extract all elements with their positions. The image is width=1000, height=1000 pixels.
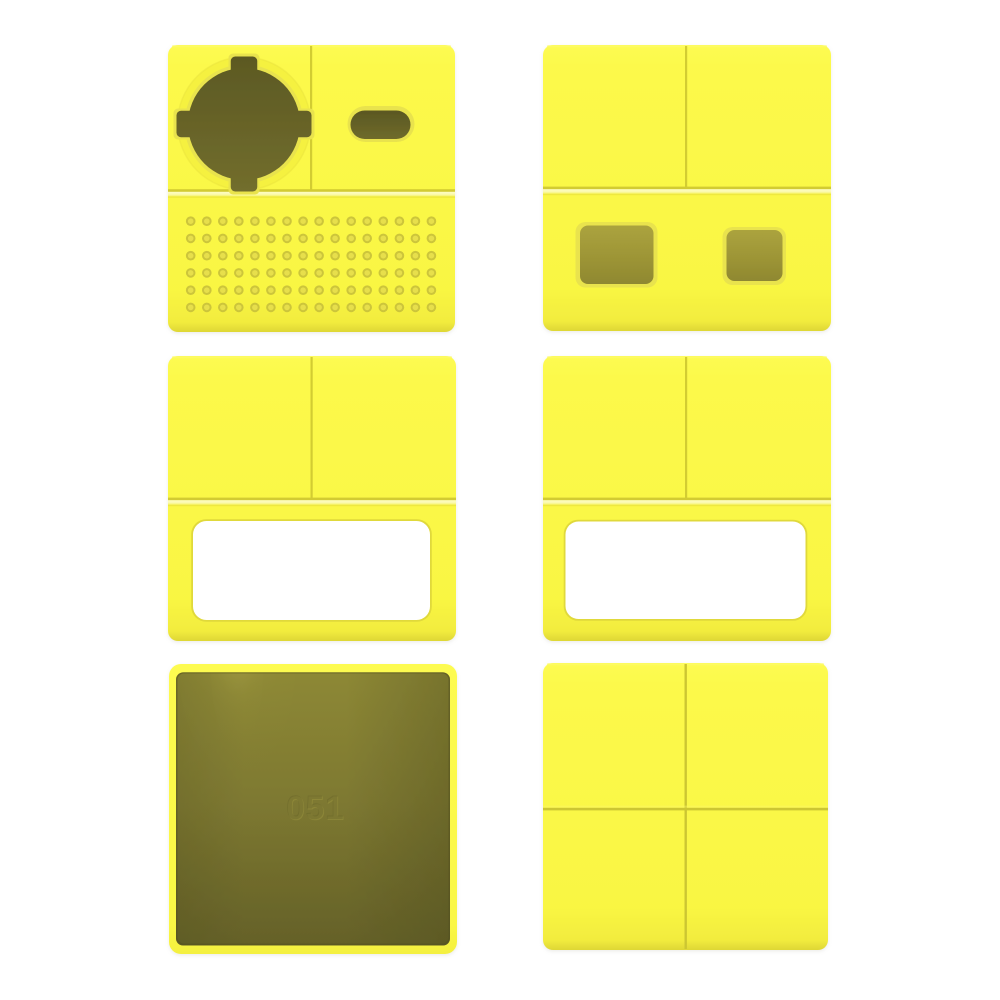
svg-text:051: 051	[286, 789, 344, 827]
